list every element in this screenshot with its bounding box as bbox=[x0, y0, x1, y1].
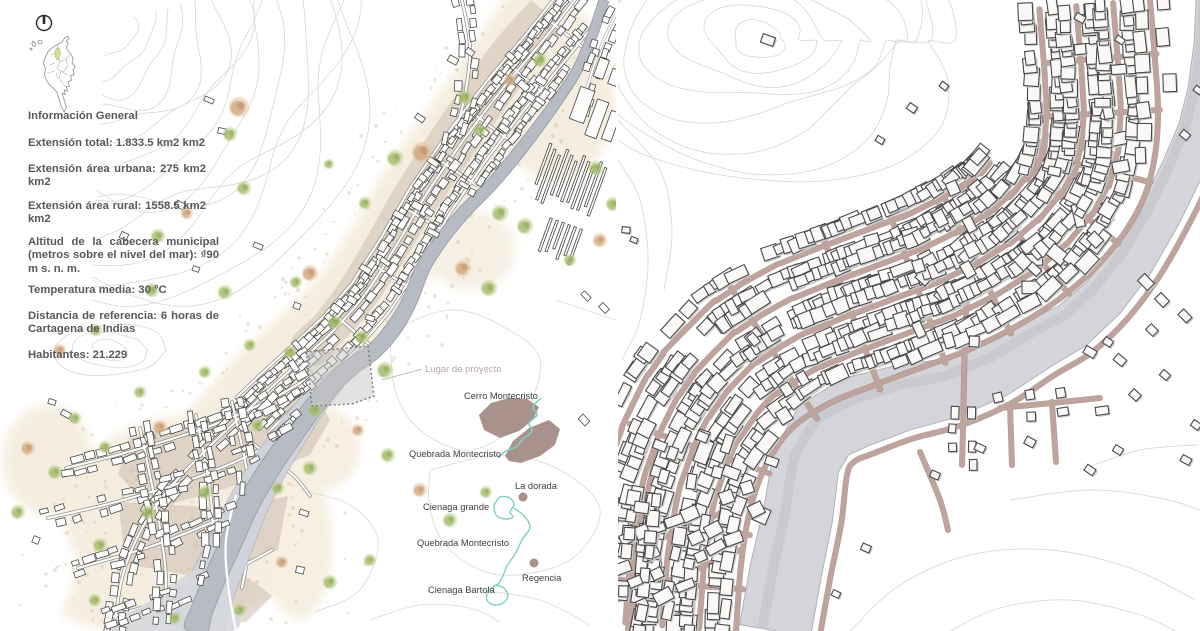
svg-text:Cerro Montecristo: Cerro Montecristo bbox=[464, 391, 538, 401]
svg-text:La dorada: La dorada bbox=[515, 481, 558, 491]
svg-text:Cienaga Bartola: Cienaga Bartola bbox=[428, 585, 496, 595]
svg-text:Lugar de proyecto: Lugar de proyecto bbox=[425, 364, 502, 375]
svg-text:Regencia: Regencia bbox=[522, 573, 562, 583]
svg-text:Quebrada Montecristo: Quebrada Montecristo bbox=[409, 449, 501, 459]
svg-text:Quebrada Montecristo: Quebrada Montecristo bbox=[417, 538, 509, 548]
svg-text:Cienaga grande: Cienaga grande bbox=[423, 502, 489, 512]
